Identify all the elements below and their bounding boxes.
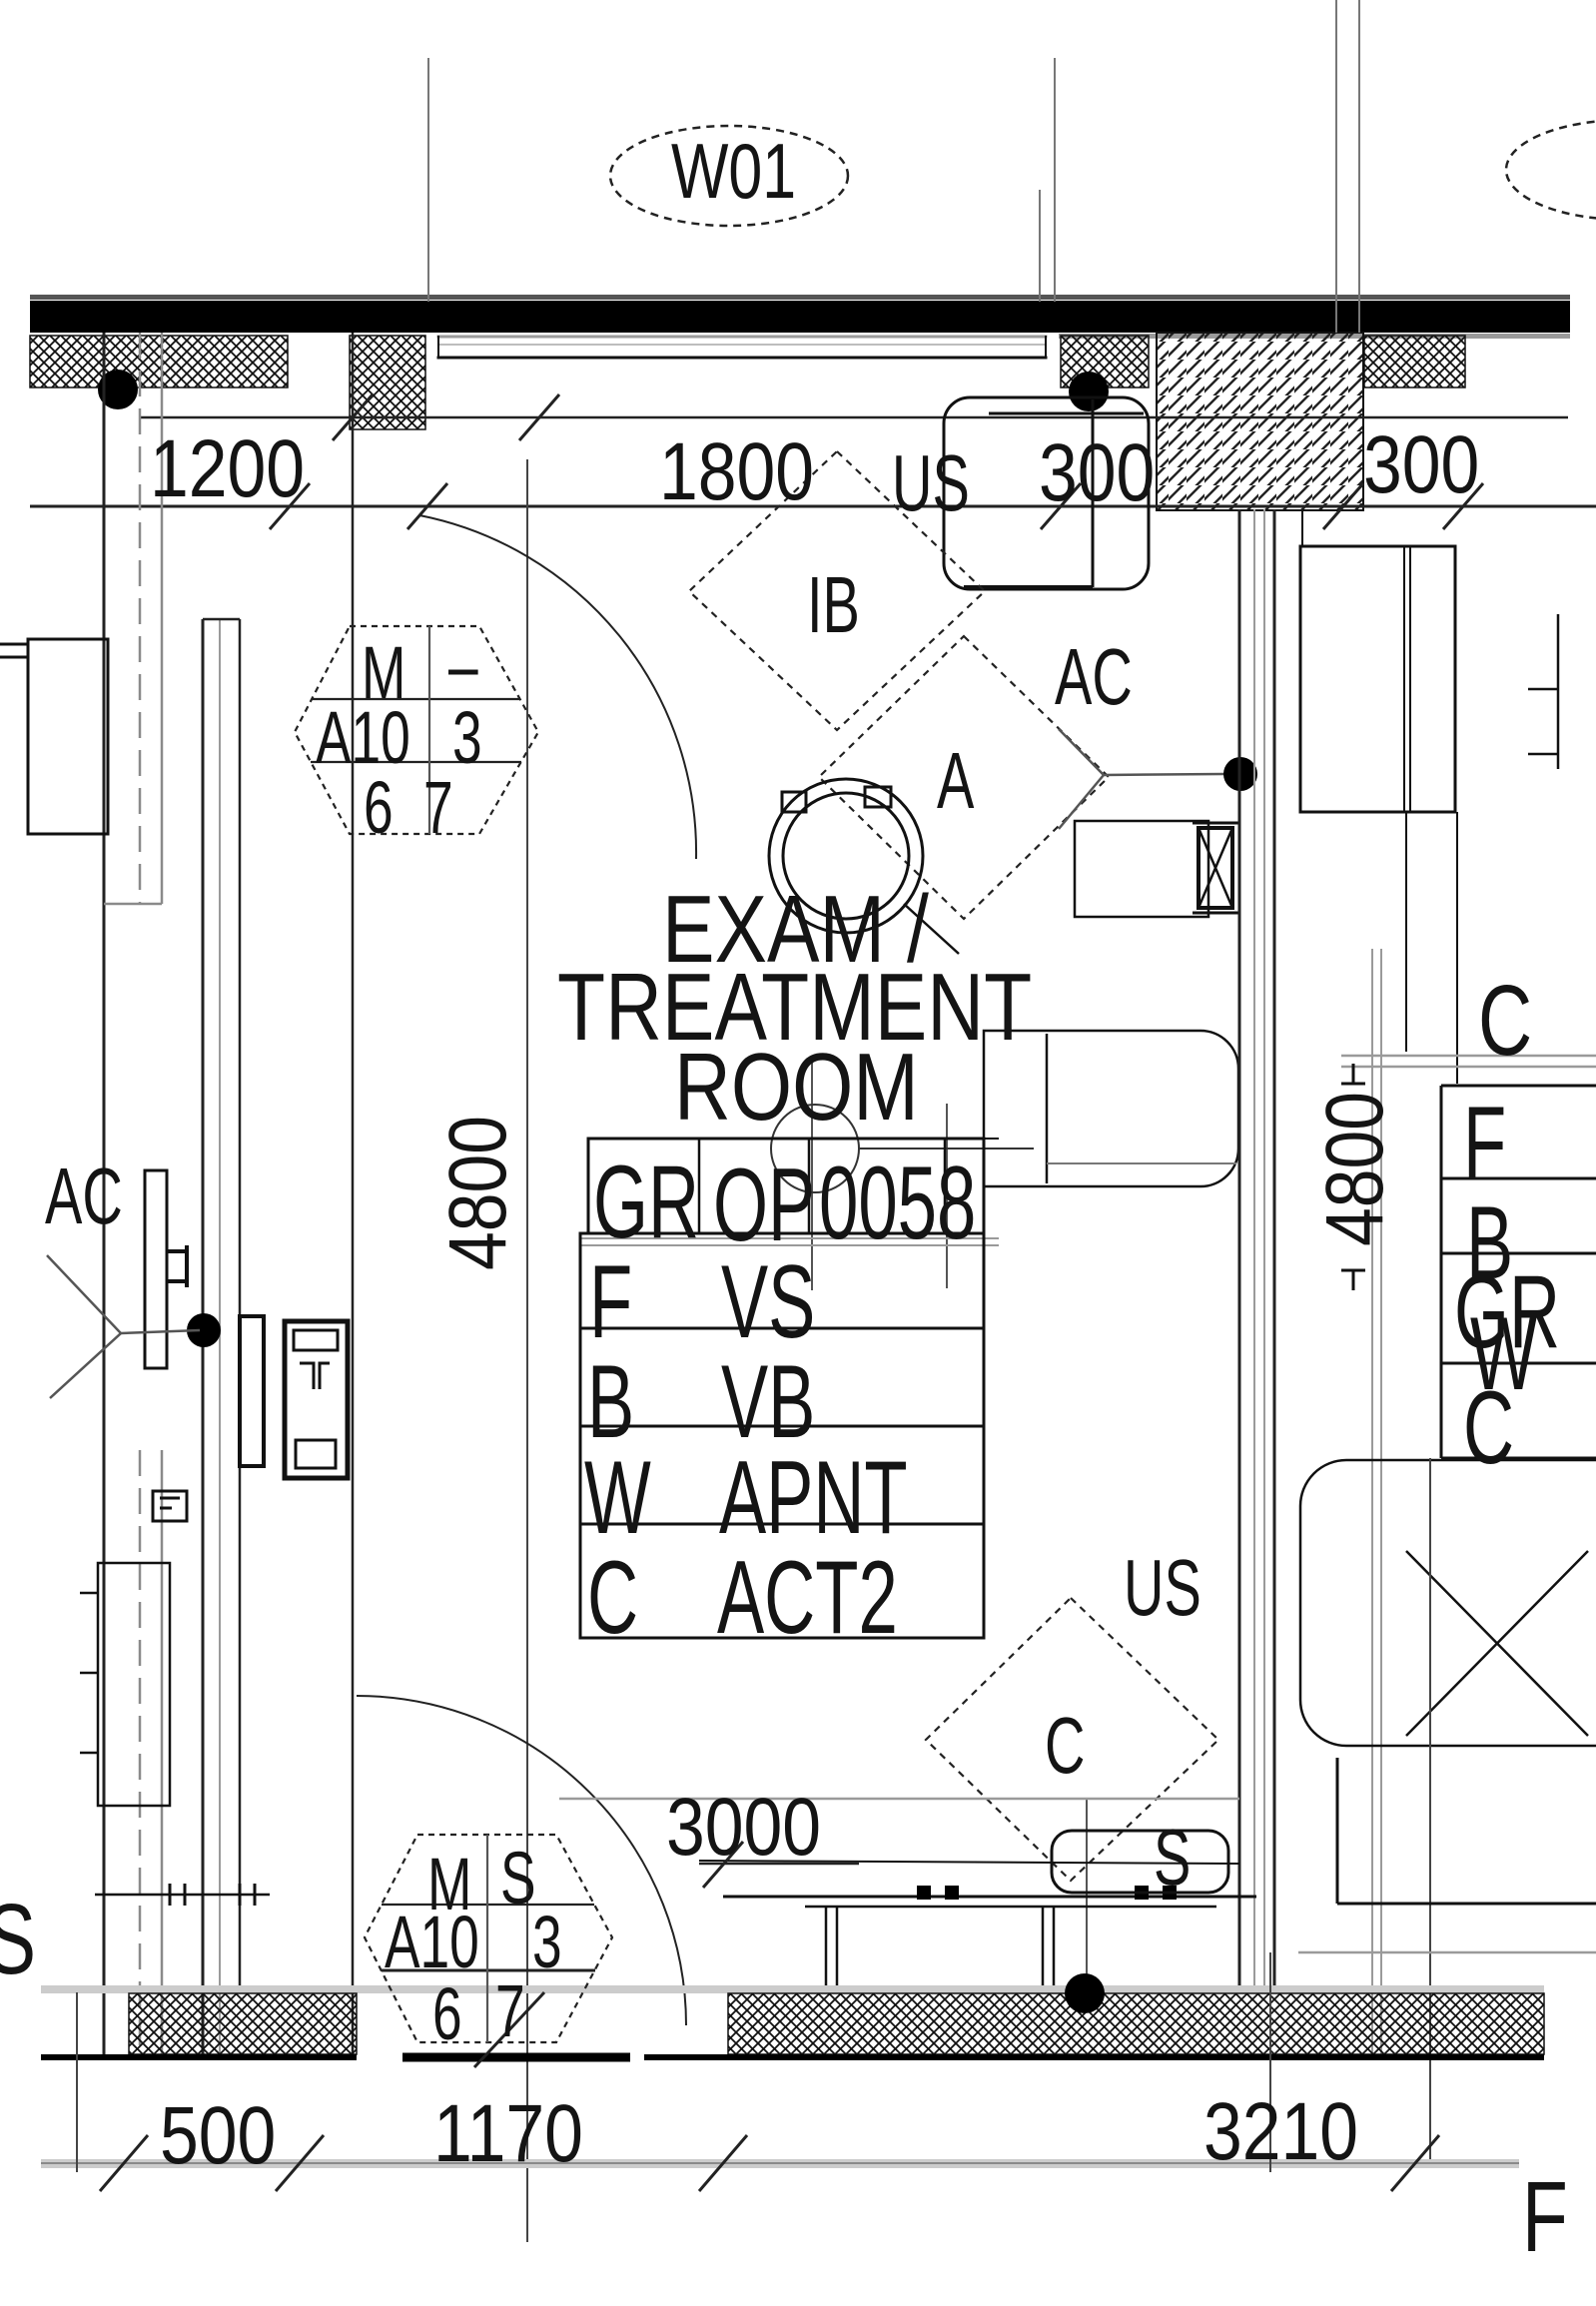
hex-bot-6: 6 [432,1977,462,2051]
bottom-wall [41,1973,1544,2057]
label-a: A [937,741,974,821]
hex-top-dash: – [448,629,478,703]
workstation-desk [240,1316,348,1478]
hex-bot-7: 7 [495,1974,525,2048]
dim-top-3: 300 [1039,432,1155,514]
schedule-r3-val: APNT [719,1446,908,1550]
schedule-number: 0058 [819,1152,976,1255]
wall-panel-left [145,1170,221,1368]
dim-bottom-3: 3210 [1203,2091,1358,2173]
left-wall [104,333,240,2059]
partial-label-bl: S [0,1890,36,1989]
dim-bottom-2: 1170 [433,2093,583,2175]
hex-top-3: 3 [452,701,482,775]
label-ac-left: AC [45,1156,123,1236]
ac-leader-right [1059,729,1257,829]
dim-top-4: 300 [1363,424,1479,506]
device-small-left [153,1491,187,1521]
adjacent-big-label: C [1478,971,1532,1071]
adjacent-room-counter [1298,1758,1596,1952]
sink-counter [559,1799,1256,1992]
schedule-gr: GR [593,1151,699,1254]
casework-lower-left [80,1563,270,1906]
schedule-r2-key: B [587,1350,634,1454]
ac-leader-left [47,1255,200,1398]
adjacent-row-f: F [1463,1092,1506,1195]
dim-left-4800: 4800 [437,1116,519,1270]
hex-bot-s: S [500,1842,536,1916]
hex-top-6: 6 [364,771,394,845]
dim-right-4800: 4800 [1314,1092,1396,1246]
label-ib: IB [807,565,860,645]
sink-basin [1052,1831,1228,1893]
label-c-diamond: C [1045,1706,1085,1786]
hex-top-7: 7 [423,771,453,845]
schedule-r2-val: VB [721,1350,815,1454]
hex-bot-a10: A10 [385,1906,479,1979]
clipped-symbol-right [1528,614,1558,769]
cabinet-top-left [0,639,108,834]
label-ac-right: AC [1055,637,1133,717]
room-name-line3: ROOM [674,1040,919,1136]
schedule-op: OP [713,1153,815,1257]
wall-equipment-right [1075,821,1238,917]
grid-extension-lines [428,0,1359,333]
hex-bot-3: 3 [532,1906,562,1979]
window-w01 [438,337,1046,358]
partial-label-br: F [1522,2167,1568,2267]
schedule-r1-key: F [589,1250,632,1354]
hex-top-a10: A10 [316,701,410,775]
schedule-r1-val: VS [721,1250,815,1354]
schedule-r4-key: C [587,1546,638,1650]
label-sink: S [1154,1818,1191,1898]
dim-top-2: 1800 [659,431,814,513]
partition-wall-right [1239,509,1274,1992]
schedule-r3-key: W [584,1446,651,1550]
label-us-mid: US [1124,1548,1201,1628]
dim-width-3000: 3000 [666,1787,821,1869]
dim-top-1: 1200 [150,428,305,510]
label-us-top: US [892,443,970,523]
schedule-r4-val: ACT2 [717,1546,898,1650]
window-tag-label: W01 [671,132,796,210]
floor-plan-canvas: W01 1200 1800 US 300 300 IB AC A AC M – … [0,0,1596,2306]
dim-bottom-1: 500 [160,2095,276,2177]
adjacent-room-bed [1300,1458,1596,2167]
adjacent-row-c: C [1463,1376,1514,1480]
